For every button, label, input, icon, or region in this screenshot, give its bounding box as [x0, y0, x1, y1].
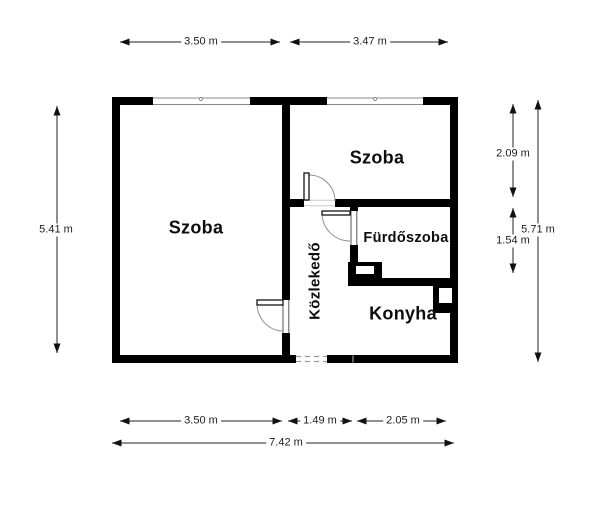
dim-label-right-szoba: 2.09 m [493, 148, 533, 161]
room-label-szoba-left: Szoba [169, 218, 224, 239]
room-label-kozlekedo: Közlekedő [307, 242, 324, 320]
dim-label-bottom-szoba: 3.50 m [181, 415, 221, 428]
floorplan-canvas: Szoba Szoba Fürdőszoba Közlekedő Konyha … [0, 0, 600, 508]
door-furdoszoba-icon [322, 211, 357, 245]
dim-label-bottom-kozlekedo: 1.49 m [300, 415, 340, 428]
dim-label-top-left: 3.50 m [181, 36, 221, 49]
room-label-konyha: Konyha [369, 304, 437, 325]
entrance-door-icon [296, 357, 327, 362]
dim-label-bottom-konyha: 2.05 m [383, 415, 423, 428]
dim-label-top-right: 3.47 m [350, 36, 390, 49]
room-label-szoba-right: Szoba [350, 148, 405, 169]
dim-label-bottom-total: 7.42 m [266, 437, 306, 450]
floorplan-drawing [0, 0, 600, 508]
room-label-furdoszoba: Fürdőszoba [363, 230, 448, 246]
door-szoba-right-icon [304, 173, 335, 206]
dim-label-left-total: 5.41 m [36, 224, 76, 237]
door-szoba-left-icon [257, 300, 289, 333]
dim-label-right-total: 5.71 m [518, 224, 558, 237]
